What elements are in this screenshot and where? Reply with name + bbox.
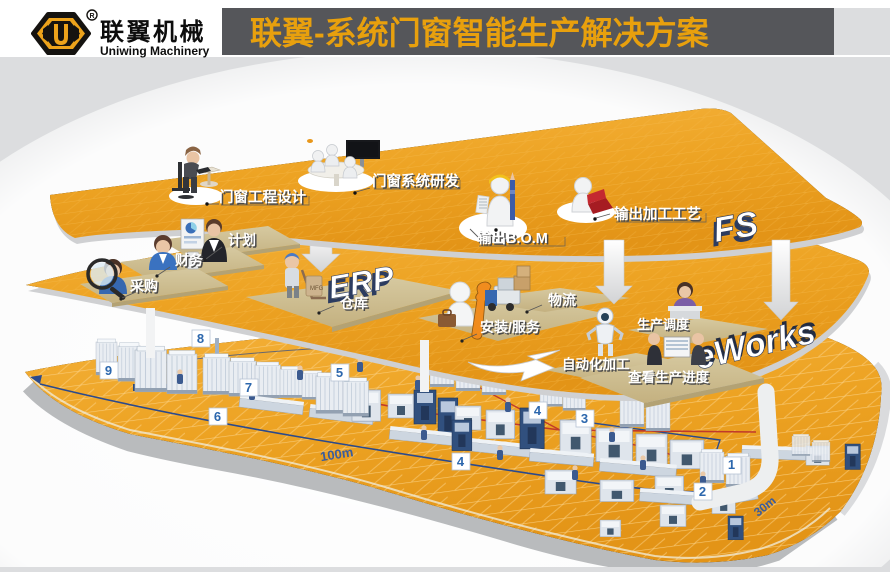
svg-text:2: 2 <box>699 484 706 499</box>
svg-text:采购: 采购 <box>129 278 158 294</box>
svg-text:仓库: 仓库 <box>339 295 368 311</box>
svg-text:门窗工程设计: 门窗工程设计 <box>219 188 306 206</box>
svg-text:1: 1 <box>728 457 735 472</box>
svg-text:物流: 物流 <box>548 292 576 308</box>
svg-text:8: 8 <box>197 331 204 346</box>
svg-text:5: 5 <box>336 365 343 380</box>
svg-text:Uniwing Machinery: Uniwing Machinery <box>100 44 210 58</box>
svg-text:联翼-系统门窗智能生产解决方案: 联翼-系统门窗智能生产解决方案 <box>250 15 710 51</box>
svg-text:输出B.O.M: 输出B.O.M <box>477 229 548 247</box>
svg-text:生产调度: 生产调度 <box>637 317 690 332</box>
svg-text:联翼机械: 联翼机械 <box>100 19 206 46</box>
svg-text:输出加工工艺: 输出加工工艺 <box>614 205 701 223</box>
svg-text:6: 6 <box>214 409 221 424</box>
svg-text:4: 4 <box>534 403 542 418</box>
svg-text:4: 4 <box>457 454 465 469</box>
svg-text:自动化加工: 自动化加工 <box>562 356 630 372</box>
svg-text:安装/服务: 安装/服务 <box>480 319 541 335</box>
svg-text:9: 9 <box>105 363 112 378</box>
svg-text:MFG: MFG <box>310 286 324 292</box>
svg-text:7: 7 <box>245 380 252 395</box>
svg-text:3: 3 <box>581 411 588 426</box>
svg-text:R: R <box>89 13 94 20</box>
svg-text:财务: 财务 <box>174 252 204 268</box>
svg-text:门窗系统研发: 门窗系统研发 <box>372 172 459 190</box>
svg-text:FS: FS <box>710 204 761 250</box>
svg-text:查看生产进度: 查看生产进度 <box>628 369 709 385</box>
svg-text:计划: 计划 <box>228 232 256 248</box>
